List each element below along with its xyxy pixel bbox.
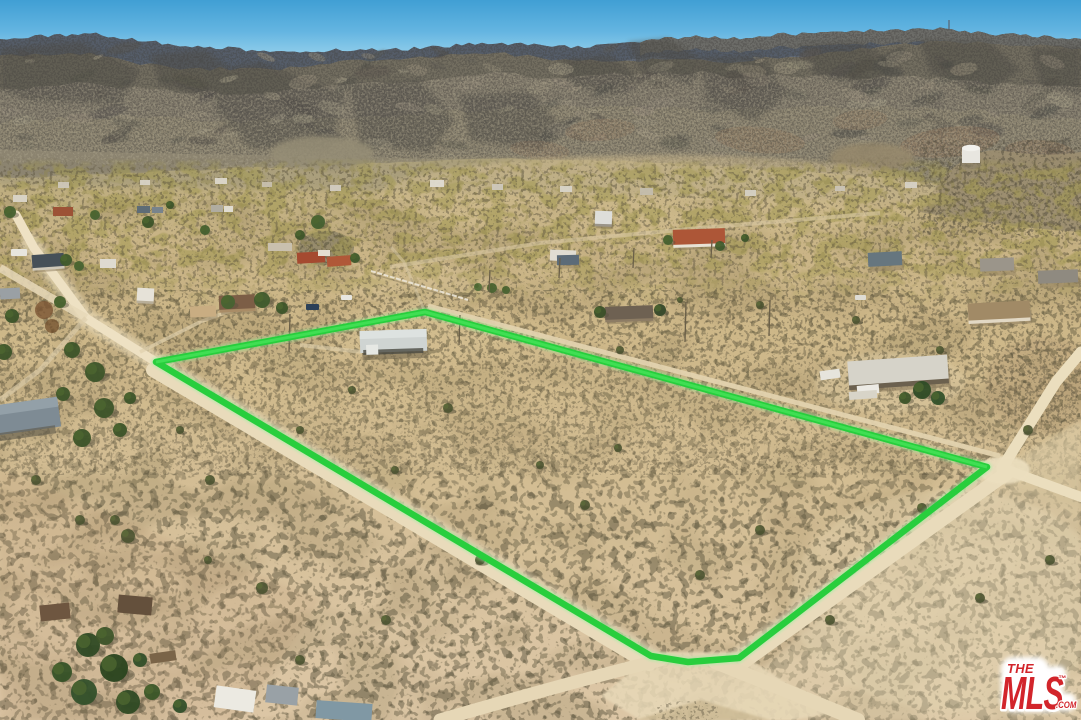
svg-text:™: ™ — [1058, 674, 1066, 683]
svg-text:MLS: MLS — [1001, 669, 1064, 720]
svg-text:.COM: .COM — [1056, 699, 1077, 710]
